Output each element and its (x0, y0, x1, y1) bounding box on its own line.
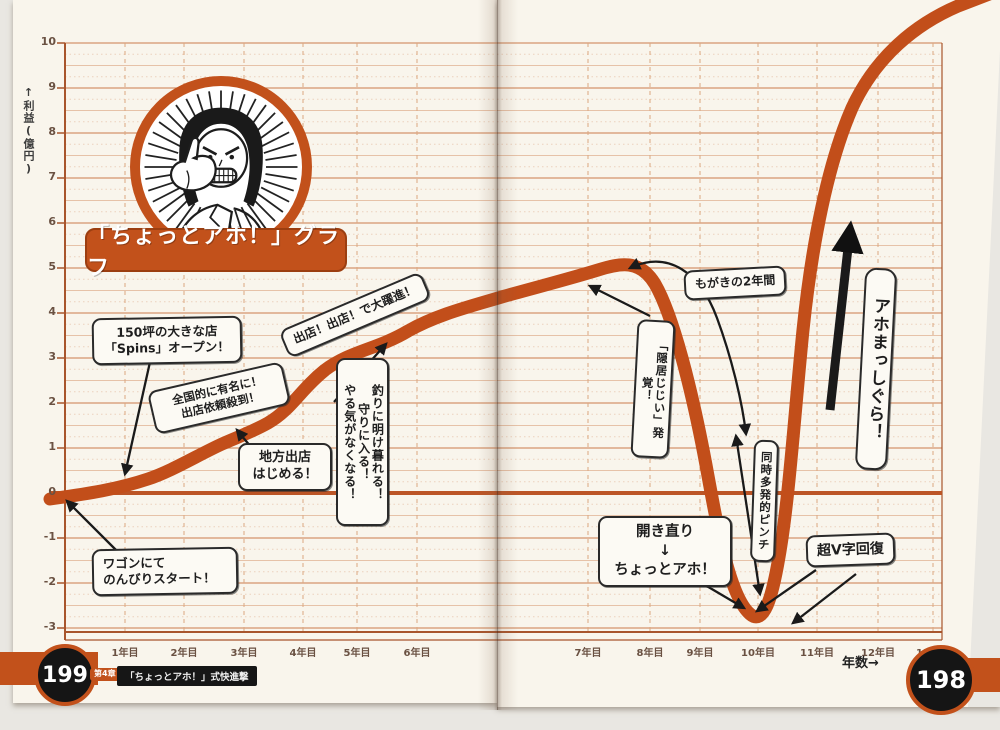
callout-struggle-2years: もがきの2年間 (683, 265, 787, 300)
page-gutter-shadow (478, 0, 518, 710)
callout-super-v-recovery: 超V字回復 (805, 532, 895, 567)
callout-spins-open: 150坪の大きな店 「Spins」オープン！ (92, 316, 243, 365)
chapter-number-badge: 第4章 (90, 668, 120, 681)
book-spread-photo: 109876543210-1-2-3 1年目2年目3年目4年目5年目6年目7年目… (0, 0, 1000, 730)
page-fold-line (497, 0, 498, 710)
chapter-title-bar: 「ちょっとアホ！」式快進撃 (117, 666, 257, 686)
left-page-number: 199 (34, 644, 96, 706)
right-page (497, 0, 1000, 707)
callout-regional-stores: 地方出店 はじめる！ (238, 443, 332, 491)
chart-title-badge: 「ちょっとアホ！」グラフ (85, 228, 347, 272)
callout-wagon-start: ワゴンにて のんびりスタート！ (92, 547, 239, 596)
callout-hermit-discovered: 「隠居じじい」発覚！ (630, 319, 676, 459)
y-axis-title: ↑利益(億円) (20, 86, 36, 176)
callout-losing-motivation: やる気がなくなる！ 守りに入る！ 釣りに明け暮れる！ (336, 358, 389, 526)
callout-turnaround-aho: 開き直り ↓ ちょっとアホ！ (598, 516, 732, 587)
x-axis-title: 年数→ (842, 652, 879, 671)
callout-simultaneous-pinch: 同時多発的ピンチ (750, 440, 779, 563)
right-page-number: 198 (906, 645, 976, 715)
